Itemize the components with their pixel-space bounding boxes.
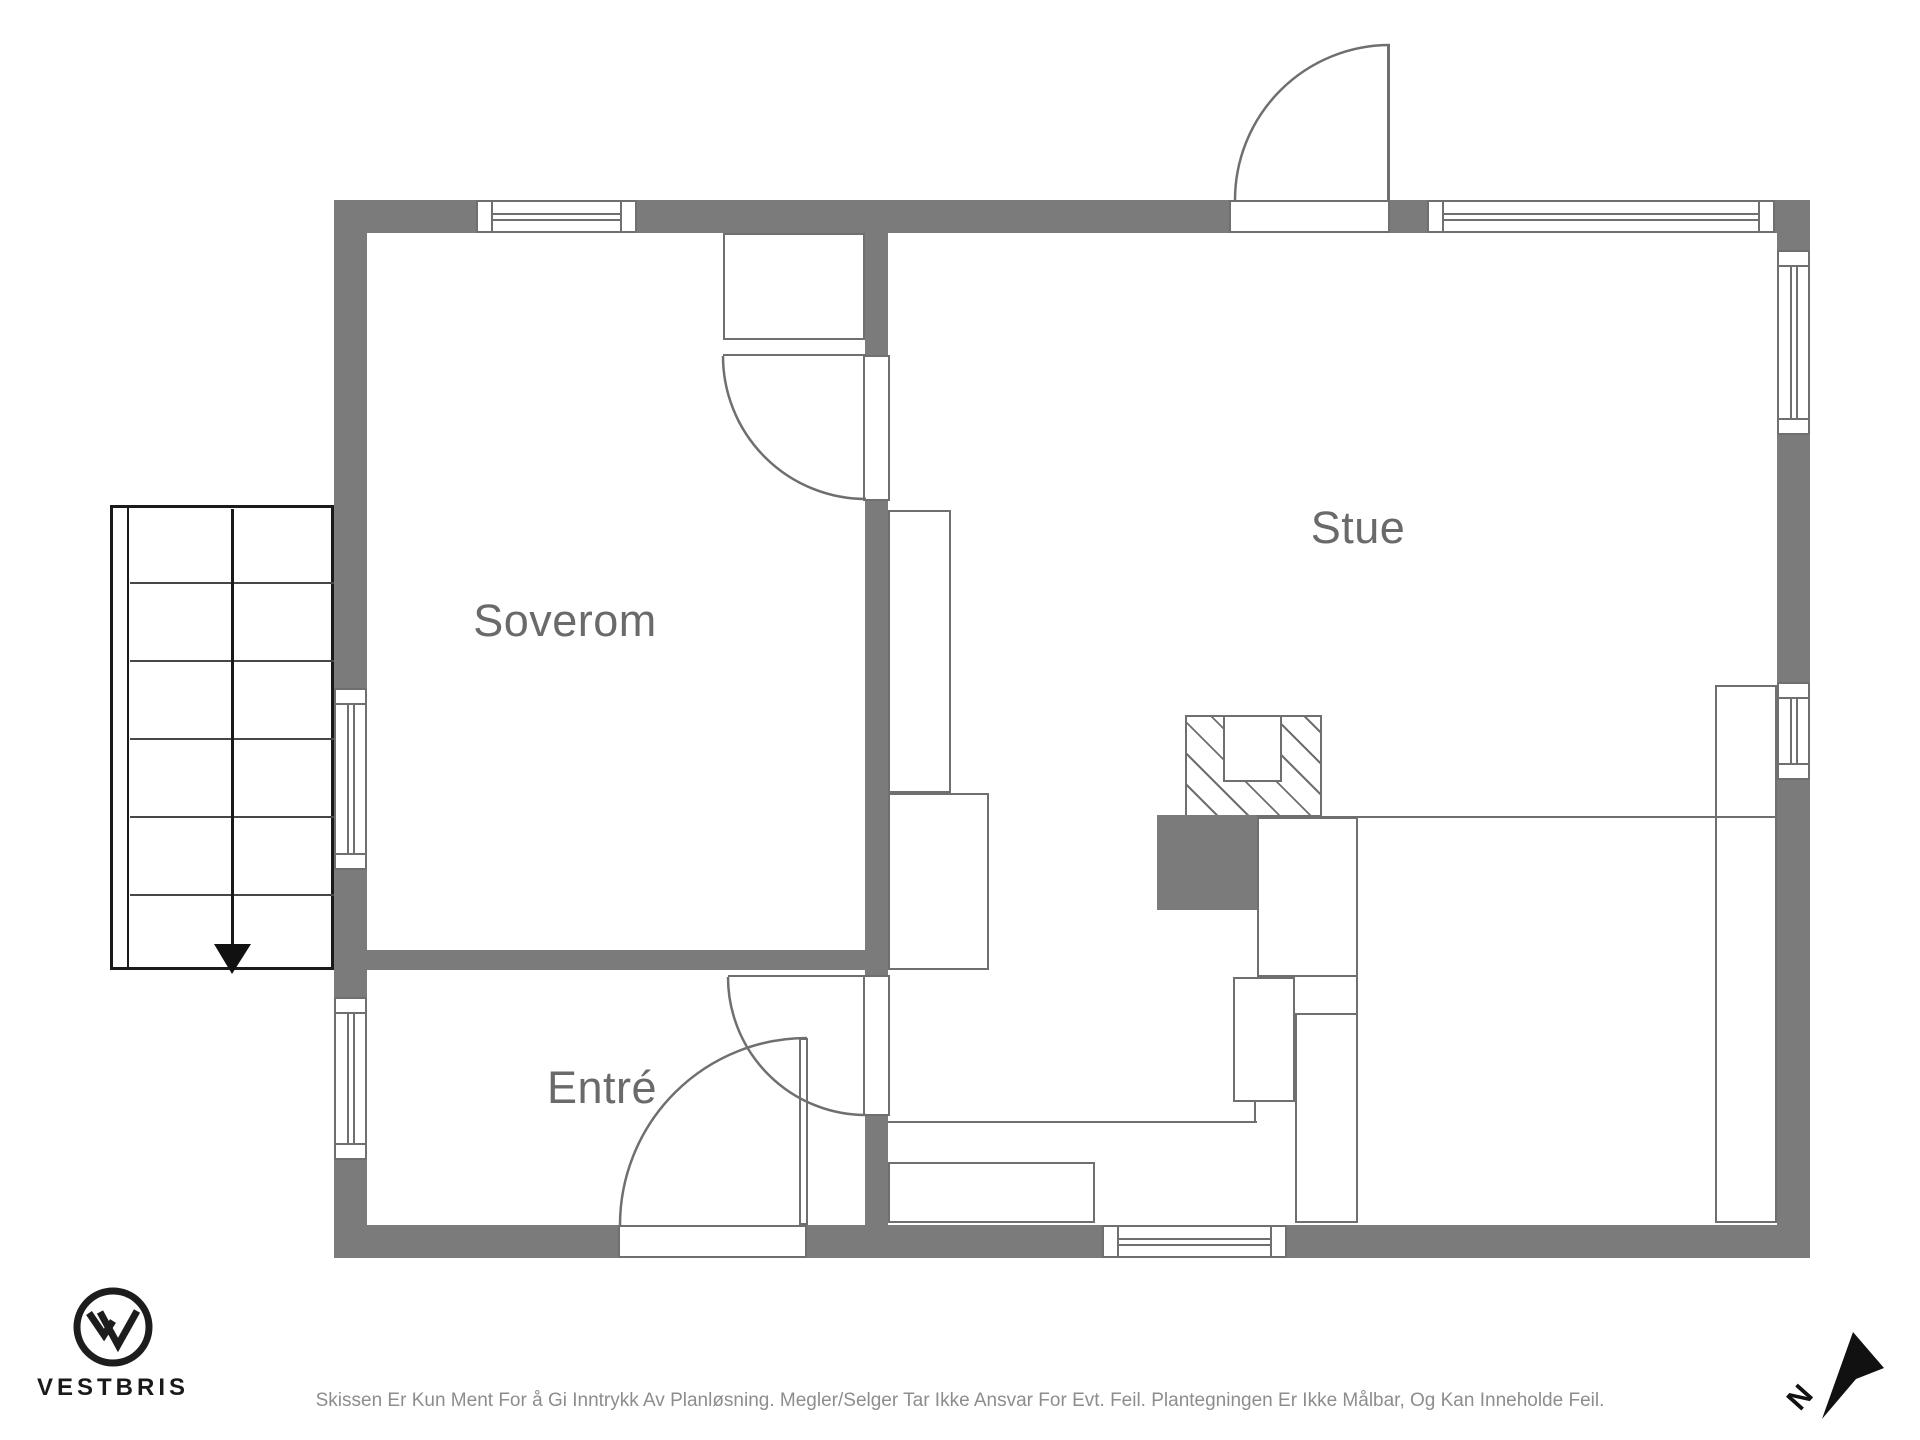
kitchen-divider-line [1257, 816, 1777, 818]
entry-exterior-door-opening [618, 1225, 807, 1258]
living-window-right-upper [1777, 250, 1810, 435]
room-label-bedroom: Soverom [473, 595, 657, 647]
kitchen-counter-a [1257, 817, 1358, 977]
wall-bottom [334, 1225, 1810, 1258]
hall-counter-connector [1254, 1102, 1256, 1123]
stairs-stringer [127, 507, 129, 968]
entry-inner-door-arc [728, 977, 866, 1115]
room-label-entry: Entré [547, 1062, 657, 1114]
kitchen-counter-b [1233, 977, 1295, 1102]
logo-check-icon [89, 1313, 113, 1335]
bedroom-closet [723, 233, 865, 340]
wardrobe-wide [888, 793, 989, 970]
logo-circle-icon [77, 1291, 149, 1363]
kitchen-counter-c [1295, 1013, 1358, 1223]
bedroom-door-opening [863, 355, 890, 501]
entry-inner-door-leaf [728, 975, 866, 977]
right-wall-strip [1715, 685, 1777, 1223]
disclaimer-text: Skissen Er Kun Ment For å Gi Inntrykk Av… [0, 1390, 1920, 1412]
logo-vee-icon [100, 1311, 137, 1345]
fireplace [1157, 815, 1257, 910]
chimney-flue [1223, 715, 1282, 782]
living-window-right-lower [1777, 682, 1810, 780]
entry-window-left [334, 997, 367, 1160]
kitchen-edge-line [1356, 977, 1358, 1015]
living-window-top [1427, 200, 1775, 233]
front-door-leaf [1387, 45, 1390, 200]
stairs-direction-shaft [231, 509, 234, 947]
wardrobe-tall [888, 510, 951, 793]
room-label-living: Stue [1311, 502, 1406, 554]
hall-counter-line [888, 1121, 1257, 1123]
bedroom-door-arc [723, 356, 866, 499]
bedroom-door-leaf [723, 354, 866, 356]
window-bottom [1102, 1225, 1287, 1258]
entry-inner-door-opening [863, 975, 890, 1116]
floorplan-page: Soverom Stue Entré N VESTBRIS Skissen Er… [0, 0, 1920, 1440]
front-door-opening [1229, 200, 1390, 233]
bedroom-window-top [476, 200, 637, 233]
entry-exterior-door-leaf [799, 1038, 808, 1225]
wall-entry-horizontal [367, 950, 865, 970]
bedroom-window-left [334, 688, 367, 870]
bench-bottom [888, 1162, 1095, 1223]
front-door-arc [1235, 45, 1390, 200]
